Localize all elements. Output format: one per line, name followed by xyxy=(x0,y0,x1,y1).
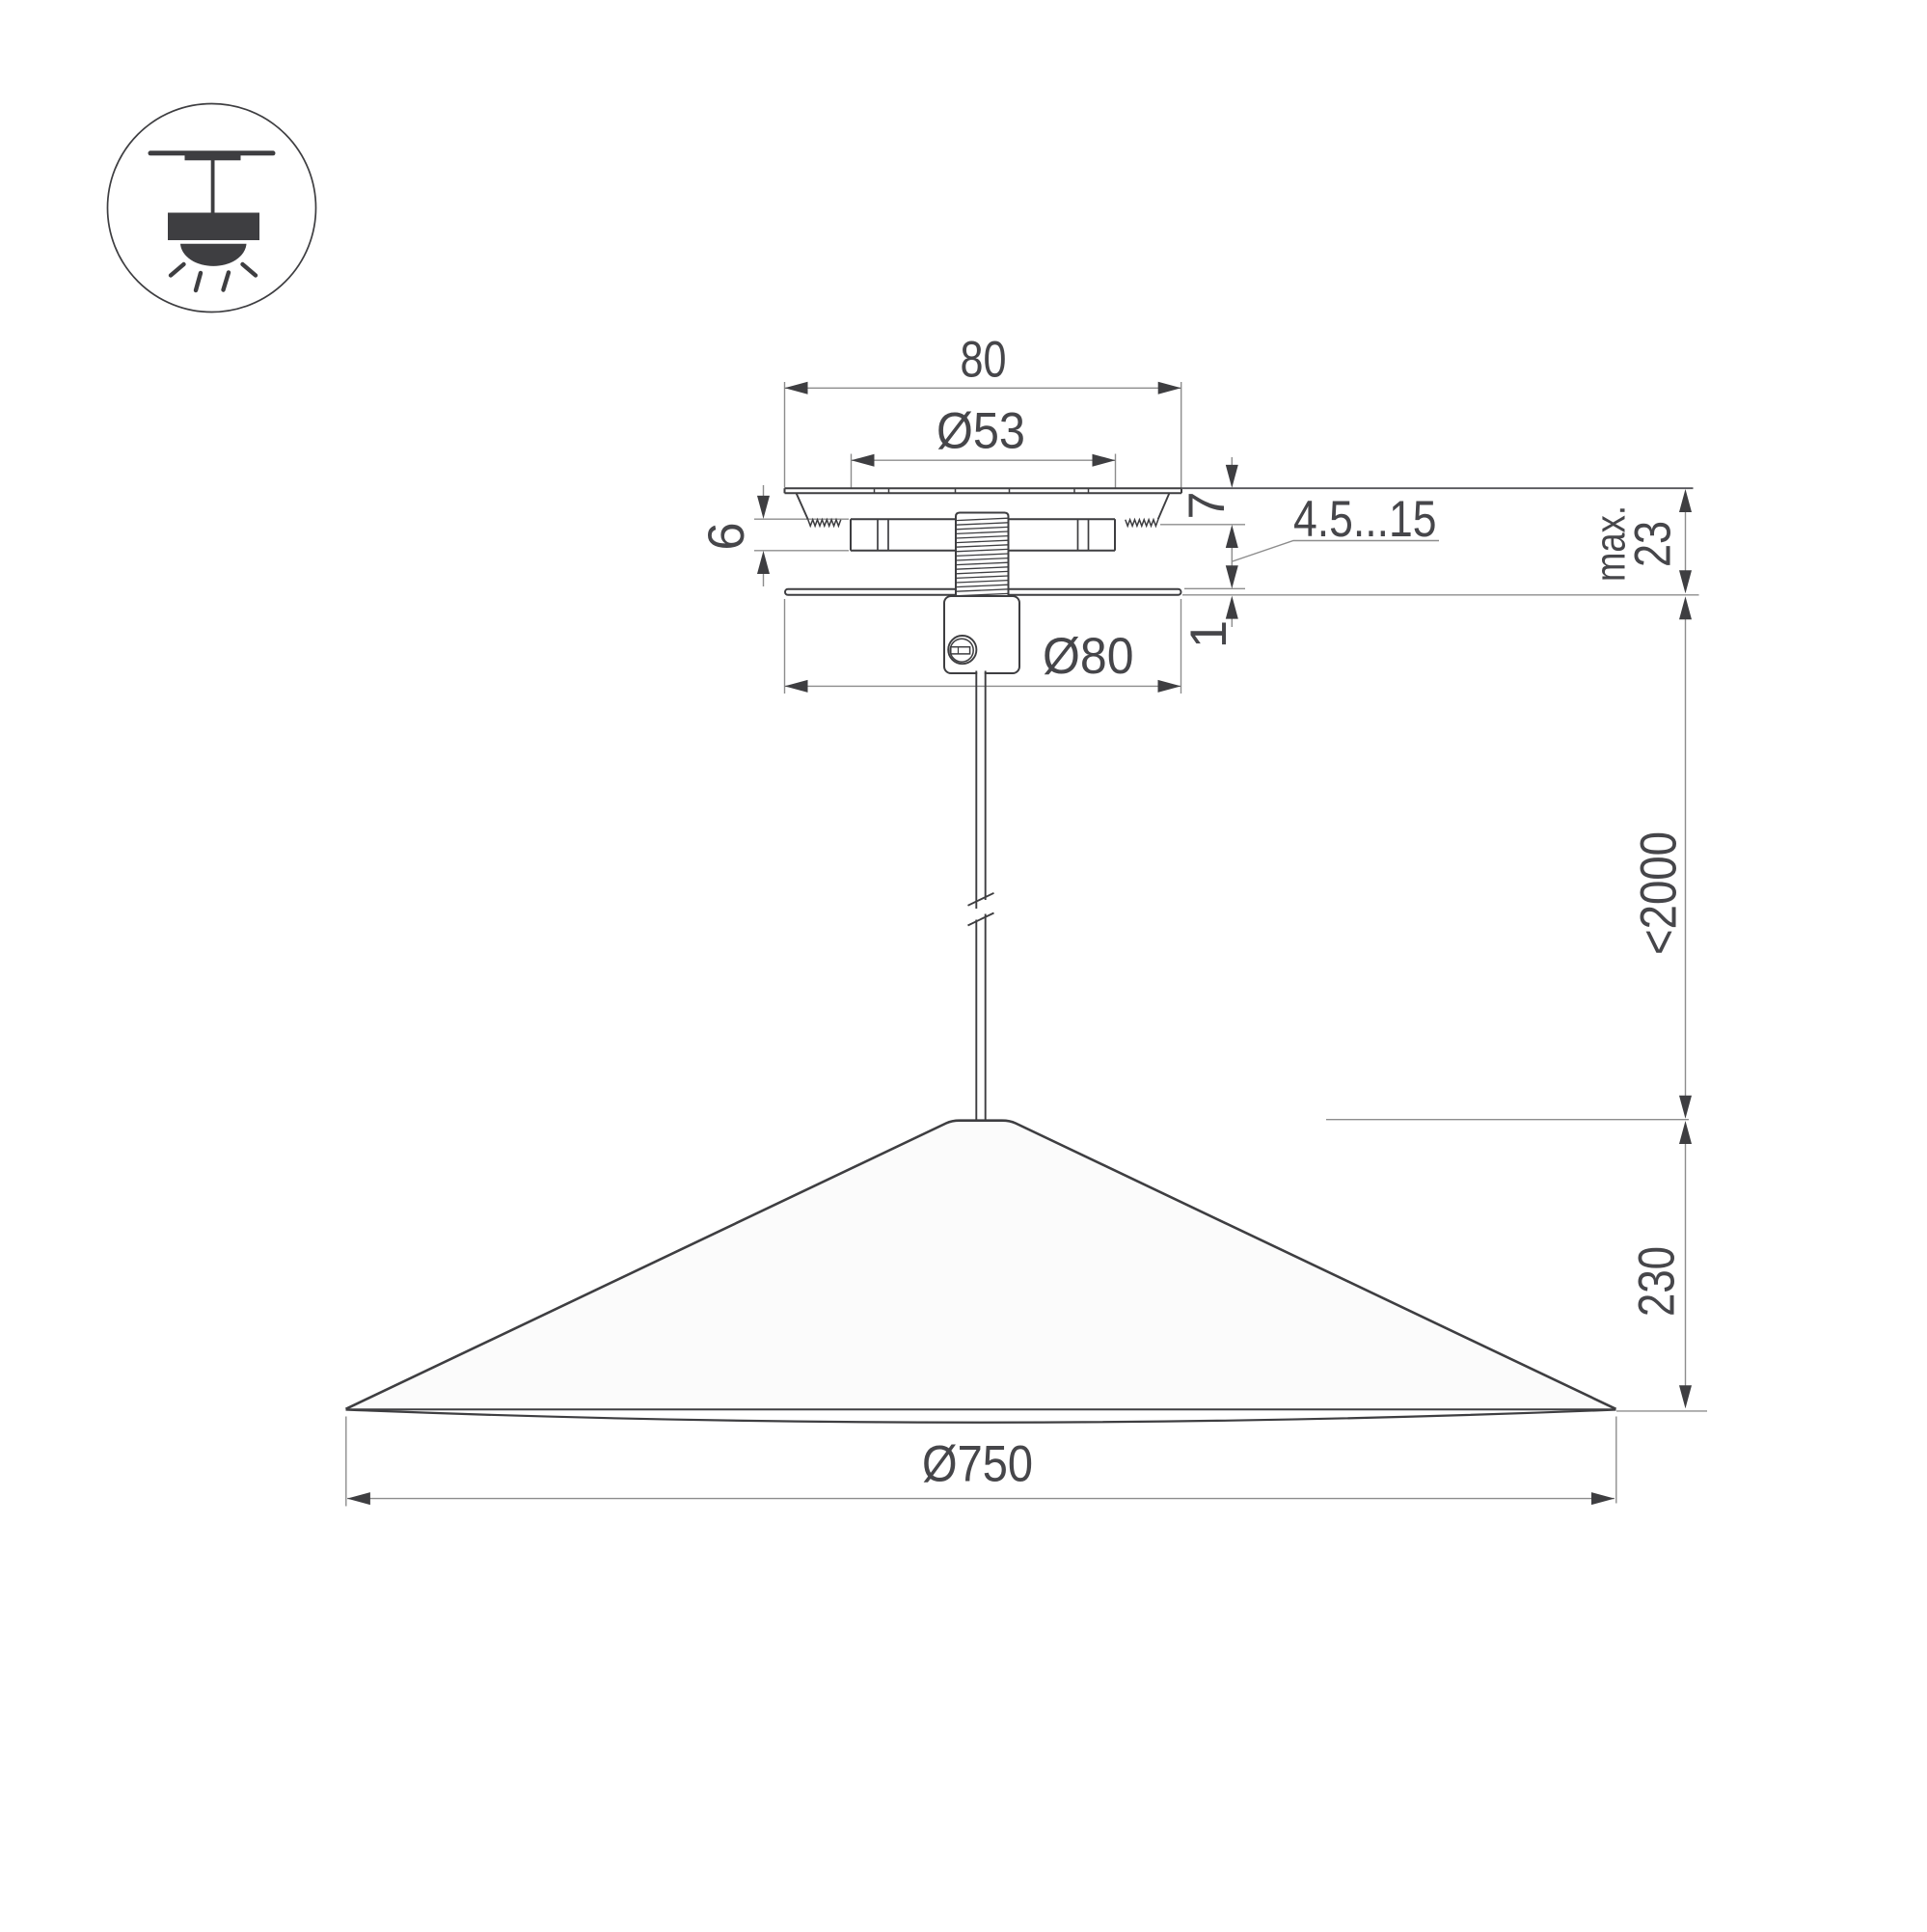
svg-text:Ø750: Ø750 xyxy=(922,1436,1033,1493)
svg-text:1: 1 xyxy=(1181,620,1237,648)
svg-text:6: 6 xyxy=(698,522,755,550)
svg-text:4.5...15: 4.5...15 xyxy=(1293,491,1437,548)
svg-text:23: 23 xyxy=(1625,521,1682,567)
svg-text:230: 230 xyxy=(1629,1246,1686,1317)
svg-text:Ø80: Ø80 xyxy=(1043,628,1134,685)
svg-text:<2000: <2000 xyxy=(1631,831,1688,955)
svg-text:Ø53: Ø53 xyxy=(936,403,1025,460)
svg-text:7: 7 xyxy=(1179,491,1235,519)
svg-text:80: 80 xyxy=(961,331,1007,388)
